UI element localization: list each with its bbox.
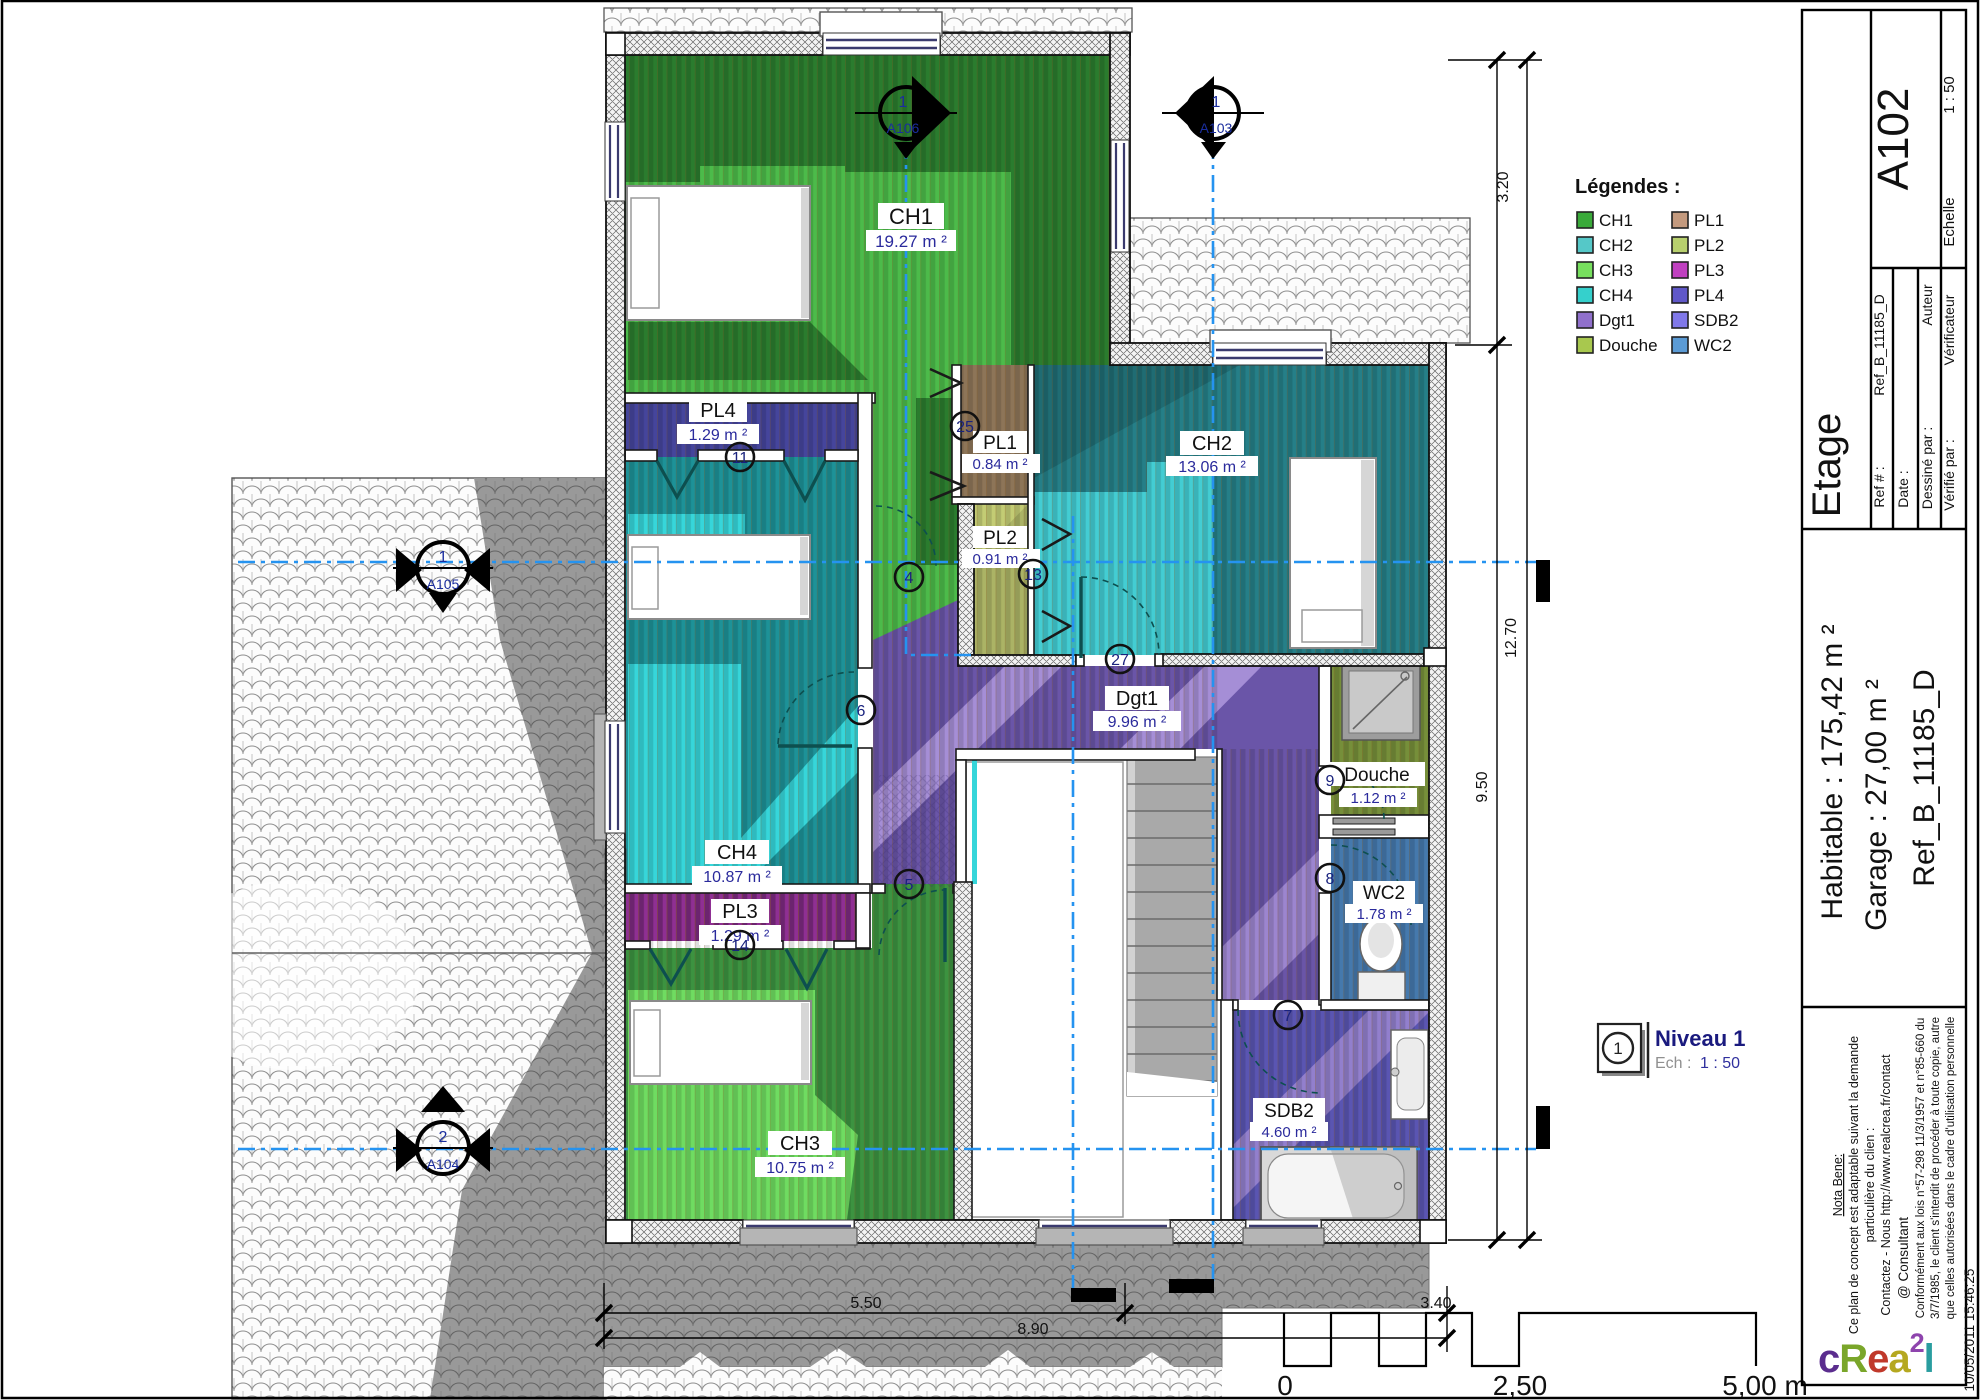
svg-text:8: 8 bbox=[1326, 871, 1335, 888]
svg-text:5: 5 bbox=[905, 877, 914, 894]
svg-text:1: 1 bbox=[1212, 94, 1221, 111]
svg-text:Contactez - Nous http://www.re: Contactez - Nous http://www.realcrea.fr/… bbox=[1879, 1054, 1893, 1316]
svg-text:0.84 m ²: 0.84 m ² bbox=[972, 456, 1027, 473]
svg-text:CH3: CH3 bbox=[1599, 261, 1633, 280]
svg-text:1 : 50: 1 : 50 bbox=[1941, 76, 1958, 114]
svg-text:Douche: Douche bbox=[1344, 765, 1410, 786]
svg-text:Légendes :: Légendes : bbox=[1575, 176, 1681, 198]
svg-text:PL3: PL3 bbox=[722, 901, 758, 923]
svg-text:3.40: 3.40 bbox=[1420, 1295, 1451, 1312]
svg-text:A105: A105 bbox=[427, 576, 460, 592]
svg-text:27: 27 bbox=[1111, 652, 1129, 669]
svg-text:Echelle: Echelle bbox=[1941, 197, 1958, 246]
svg-text:WC2: WC2 bbox=[1694, 336, 1732, 355]
svg-text:14: 14 bbox=[731, 938, 749, 955]
svg-text:PL3: PL3 bbox=[1694, 261, 1724, 280]
svg-text:SDB2: SDB2 bbox=[1694, 311, 1738, 330]
svg-text:Dessiné par :: Dessiné par : bbox=[1919, 427, 1935, 509]
svg-text:A104: A104 bbox=[427, 1156, 460, 1172]
svg-text:Ce plan de concept est adaptab: Ce plan de concept est adaptable suivant… bbox=[1847, 1036, 1861, 1334]
svg-text:CH4: CH4 bbox=[717, 842, 757, 864]
svg-text:25: 25 bbox=[956, 419, 974, 436]
svg-text:CH1: CH1 bbox=[889, 204, 933, 229]
svg-text:1 : 50: 1 : 50 bbox=[1700, 1055, 1740, 1072]
svg-text:Ref_B_11185_D: Ref_B_11185_D bbox=[1908, 669, 1941, 886]
svg-text:Conformément aux lois n°57-298: Conformément aux lois n°57-298 11/3/1957… bbox=[1915, 1018, 1927, 1319]
svg-text:1: 1 bbox=[899, 94, 908, 111]
svg-text:SDB2: SDB2 bbox=[1264, 1101, 1314, 1122]
svg-text:Niveau 1: Niveau 1 bbox=[1655, 1026, 1746, 1051]
svg-text:Garage : 27,00 m ²: Garage : 27,00 m ² bbox=[1860, 679, 1893, 931]
svg-text:9.96 m ²: 9.96 m ² bbox=[1108, 714, 1167, 731]
svg-text:PL4: PL4 bbox=[700, 400, 736, 422]
svg-text:12.70: 12.70 bbox=[1503, 618, 1520, 658]
svg-text:Dgt1: Dgt1 bbox=[1116, 688, 1158, 710]
svg-text:Habitable : 175,42 m ²: Habitable : 175,42 m ² bbox=[1816, 624, 1849, 919]
svg-text:Auteur: Auteur bbox=[1919, 284, 1935, 326]
svg-text:4: 4 bbox=[905, 570, 914, 587]
svg-text:A102: A102 bbox=[1869, 88, 1918, 191]
svg-text:PL1: PL1 bbox=[983, 433, 1017, 454]
svg-text:0.91 m ²: 0.91 m ² bbox=[972, 551, 1027, 568]
svg-text:7: 7 bbox=[1284, 1008, 1293, 1025]
svg-text:Ref # :: Ref # : bbox=[1871, 466, 1887, 507]
svg-text:WC2: WC2 bbox=[1363, 883, 1405, 904]
svg-text:3/7/1985, le client s'interdit: 3/7/1985, le client s'interdit de procéd… bbox=[1930, 1017, 1942, 1319]
svg-text:Vérifié par :: Vérifié par : bbox=[1941, 439, 1957, 511]
svg-text:CH3: CH3 bbox=[780, 1133, 820, 1155]
svg-text:Nota Bene:: Nota Bene: bbox=[1831, 1154, 1845, 1217]
svg-text:PL4: PL4 bbox=[1694, 286, 1724, 305]
svg-text:1.78 m ²: 1.78 m ² bbox=[1356, 906, 1411, 923]
svg-text:1: 1 bbox=[439, 549, 448, 566]
svg-text:19.27 m ²: 19.27 m ² bbox=[875, 232, 947, 251]
svg-text:PL2: PL2 bbox=[983, 528, 1017, 549]
svg-text:10/05/2011 15:46:25: 10/05/2011 15:46:25 bbox=[1962, 1269, 1977, 1392]
svg-text:13.06 m ²: 13.06 m ² bbox=[1178, 459, 1246, 476]
svg-text:PL1: PL1 bbox=[1694, 211, 1724, 230]
svg-text:Douche: Douche bbox=[1599, 336, 1658, 355]
svg-text:4.60 m ²: 4.60 m ² bbox=[1261, 1124, 1316, 1141]
svg-text:1: 1 bbox=[1613, 1039, 1622, 1058]
svg-text:8.90: 8.90 bbox=[1017, 1321, 1048, 1338]
svg-text:@ Consultant: @ Consultant bbox=[1896, 1217, 1911, 1299]
svg-text:Date :: Date : bbox=[1895, 470, 1911, 507]
svg-text:10.75 m ²: 10.75 m ² bbox=[766, 1160, 834, 1177]
svg-text:10.87 m ²: 10.87 m ² bbox=[703, 869, 771, 886]
svg-text:CH2: CH2 bbox=[1599, 236, 1633, 255]
svg-text:Dgt1: Dgt1 bbox=[1599, 311, 1635, 330]
svg-text:2: 2 bbox=[439, 1129, 448, 1146]
svg-text:CH4: CH4 bbox=[1599, 286, 1633, 305]
svg-text:2,50: 2,50 bbox=[1493, 1370, 1548, 1400]
svg-text:Vérificateur: Vérificateur bbox=[1941, 294, 1957, 365]
svg-text:particulière du clien :: particulière du clien : bbox=[1863, 1128, 1877, 1243]
svg-text:1.12 m ²: 1.12 m ² bbox=[1350, 790, 1405, 807]
svg-text:0: 0 bbox=[1277, 1370, 1293, 1400]
svg-text:1.29 m ²: 1.29 m ² bbox=[689, 427, 748, 444]
svg-text:5,00 m: 5,00 m bbox=[1722, 1370, 1808, 1400]
svg-text:6: 6 bbox=[857, 703, 866, 720]
svg-text:CH1: CH1 bbox=[1599, 211, 1633, 230]
svg-text:13: 13 bbox=[1024, 567, 1042, 584]
svg-text:Etage: Etage bbox=[1805, 413, 1849, 518]
svg-text:que celles autorisées dans le: que celles autorisées dans le cadre d'ut… bbox=[1945, 1017, 1957, 1320]
svg-text:3.20: 3.20 bbox=[1495, 171, 1512, 202]
svg-text:11: 11 bbox=[732, 450, 749, 467]
svg-text:Ech :: Ech : bbox=[1655, 1055, 1691, 1072]
svg-text:9: 9 bbox=[1326, 773, 1335, 790]
svg-text:9.50: 9.50 bbox=[1474, 771, 1491, 802]
svg-text:PL2: PL2 bbox=[1694, 236, 1724, 255]
svg-text:5.50: 5.50 bbox=[850, 1295, 881, 1312]
svg-text:Ref_B_11185_D: Ref_B_11185_D bbox=[1871, 294, 1887, 395]
svg-text:A106: A106 bbox=[887, 120, 920, 136]
svg-text:A103: A103 bbox=[1200, 120, 1233, 136]
svg-text:CH2: CH2 bbox=[1192, 433, 1232, 455]
